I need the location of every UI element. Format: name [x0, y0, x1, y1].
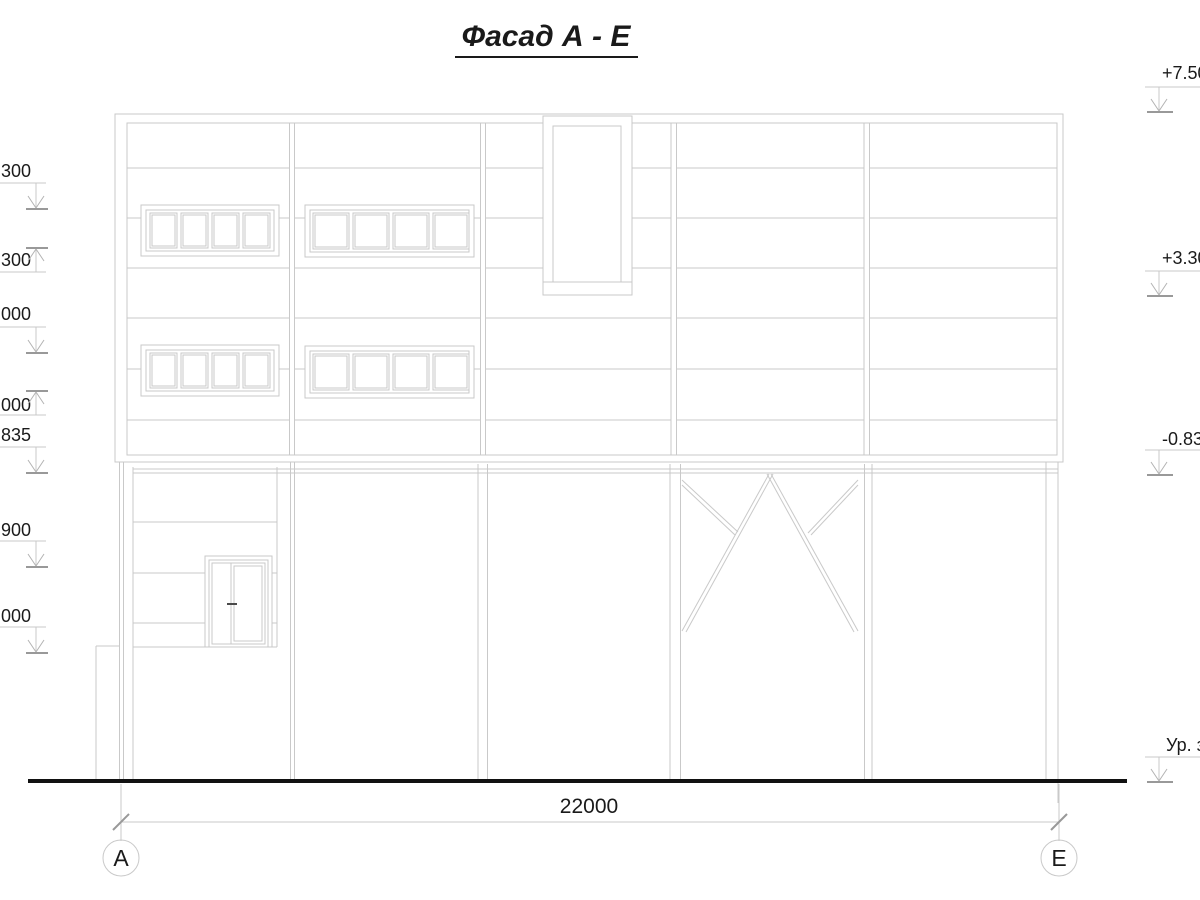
svg-text:Ур. з.: Ур. з. — [1166, 735, 1200, 755]
axis-markers: А Е — [103, 840, 1077, 876]
svg-text:.835: .835 — [0, 425, 31, 445]
elevation-marks-left: 300 .300 000 000 .835 .900 .000 — [0, 161, 48, 653]
elevation-mark: .300 — [0, 248, 48, 272]
roof-shaft — [543, 116, 632, 295]
elevation-mark: .000 — [0, 606, 48, 653]
axis-label-right: Е — [1051, 845, 1066, 871]
dimension-value: 22000 — [560, 795, 618, 818]
svg-text:+7.500: +7.500 — [1162, 63, 1200, 83]
elevation-mark: .900 — [0, 520, 48, 567]
axis-label-left: А — [113, 845, 129, 871]
svg-text:300: 300 — [1, 161, 31, 181]
page-title: Фасад А - Е — [462, 20, 632, 53]
window-row2-right — [305, 346, 474, 398]
window-row2-left — [141, 345, 279, 396]
elevation-mark: .835 — [0, 425, 48, 473]
ribbon-windows — [141, 205, 474, 398]
elevation-mark: 000 — [0, 304, 48, 353]
brace-bay — [682, 474, 858, 632]
svg-text:.300: .300 — [0, 250, 31, 270]
entrance-step — [96, 646, 119, 780]
drawing-title-block: Фасад А - Е — [455, 20, 638, 57]
svg-text:.000: .000 — [0, 606, 31, 626]
elevation-mark: +7.500 — [1145, 63, 1200, 112]
elevation-mark: 300 — [0, 161, 48, 209]
elevation-marks-right: +7.500 +3.300 -0.835 Ур. з. — [1145, 63, 1200, 782]
lower-storey — [96, 462, 1058, 803]
svg-text:.900: .900 — [0, 520, 31, 540]
dimension-string: 22000 — [113, 784, 1067, 841]
svg-text:000: 000 — [1, 395, 31, 415]
upper-storey-band — [115, 114, 1063, 462]
facade-elevation-drawing: Фасад А - Е — [0, 0, 1200, 900]
window-row1-right — [305, 205, 474, 257]
svg-text:+3.300: +3.300 — [1162, 248, 1200, 268]
elevation-mark: -0.835 — [1145, 429, 1200, 475]
window-row1-left — [141, 205, 279, 256]
elevation-mark: +3.300 — [1145, 248, 1200, 296]
svg-text:-0.835: -0.835 — [1162, 429, 1200, 449]
elevation-mark: 000 — [0, 391, 48, 415]
svg-text:000: 000 — [1, 304, 31, 324]
elevation-mark: Ур. з. — [1145, 735, 1200, 782]
entrance-door — [205, 556, 272, 647]
